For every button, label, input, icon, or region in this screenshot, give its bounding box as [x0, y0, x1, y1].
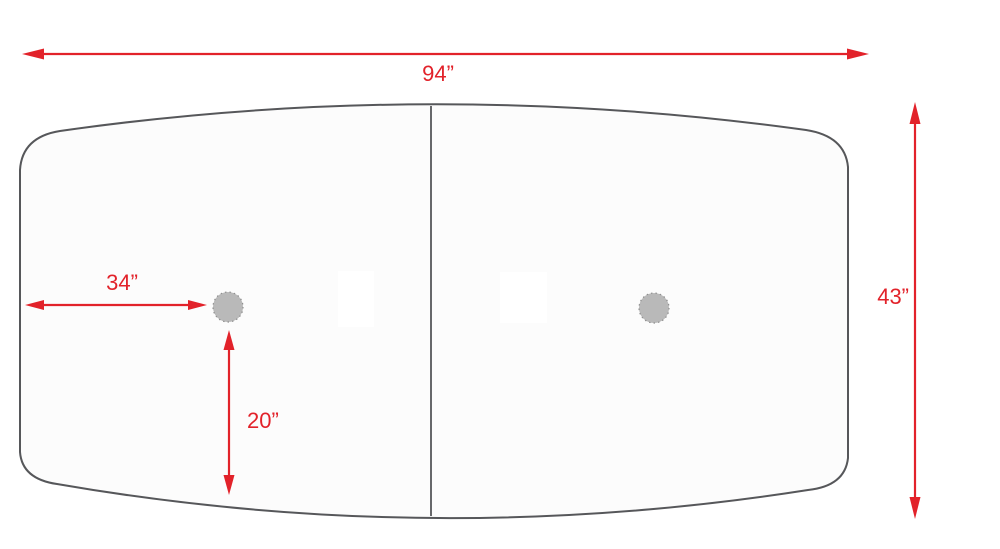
dim-grommet-offset-left-label: 34”: [106, 270, 138, 295]
dim-overall-width-label: 94”: [422, 61, 454, 86]
tabletop-outline: [20, 104, 848, 518]
tabletop-sheen-right: [500, 272, 547, 323]
grommet-left: [213, 292, 243, 322]
tabletop-sheen-left: [338, 271, 374, 327]
dim-grommet-offset-bottom-label: 20”: [247, 408, 279, 433]
dimension-diagram: 94” 43” 34” 20”: [0, 0, 1000, 549]
dim-overall-depth-label: 43”: [877, 284, 909, 309]
diagram-svg: 94” 43” 34” 20”: [0, 0, 1000, 549]
grommet-right: [639, 293, 669, 323]
